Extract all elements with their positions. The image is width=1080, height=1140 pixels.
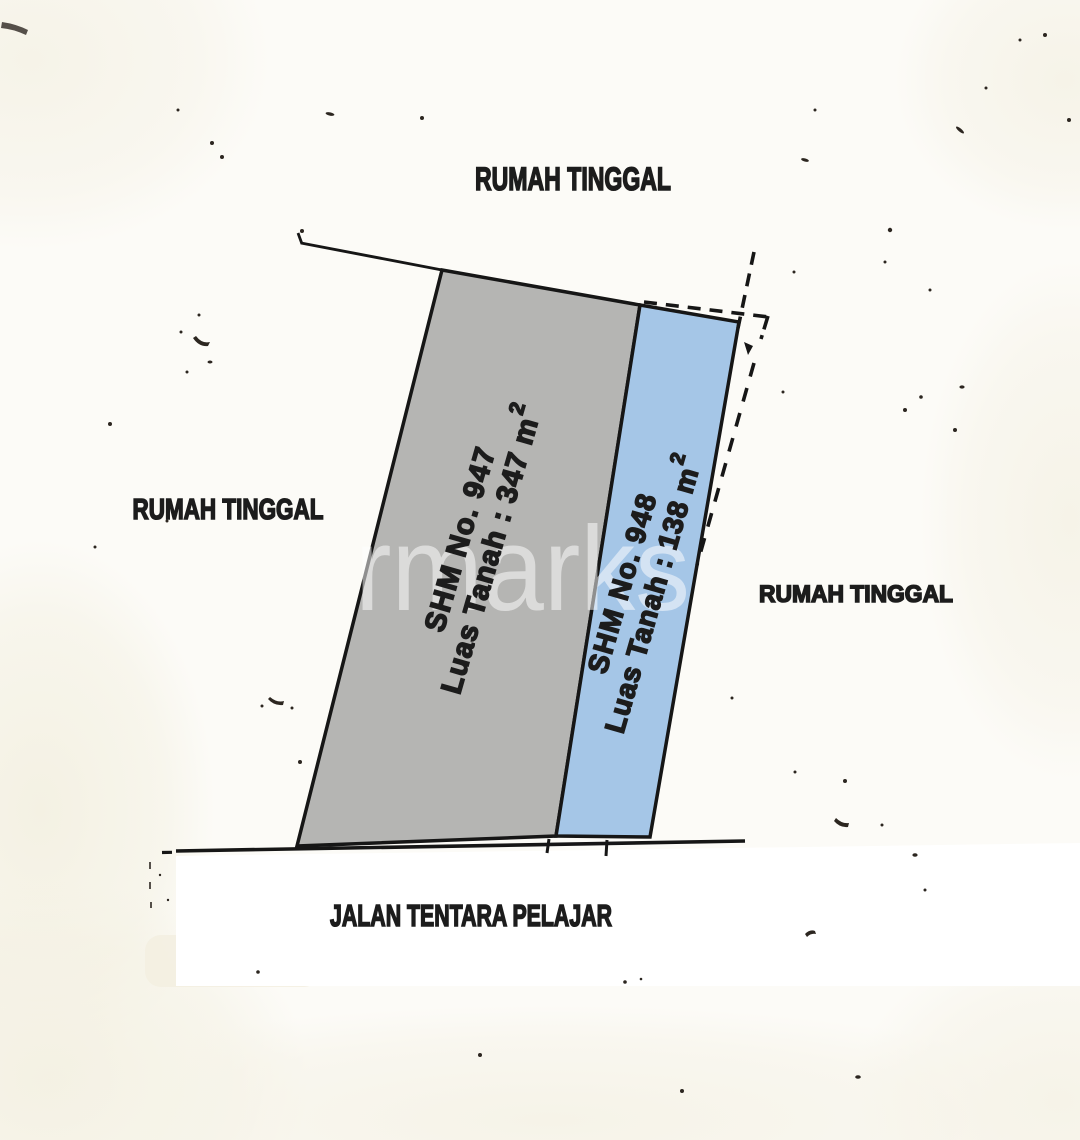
- svg-text:RUMAH TINGGAL: RUMAH TINGGAL: [133, 494, 324, 526]
- svg-text:RUMAH TINGGAL: RUMAH TINGGAL: [475, 161, 671, 197]
- svg-text:RUMAH TINGGAL: RUMAH TINGGAL: [759, 581, 953, 608]
- svg-text:JALAN TENTARA PELAJAR: JALAN TENTARA PELAJAR: [330, 899, 612, 933]
